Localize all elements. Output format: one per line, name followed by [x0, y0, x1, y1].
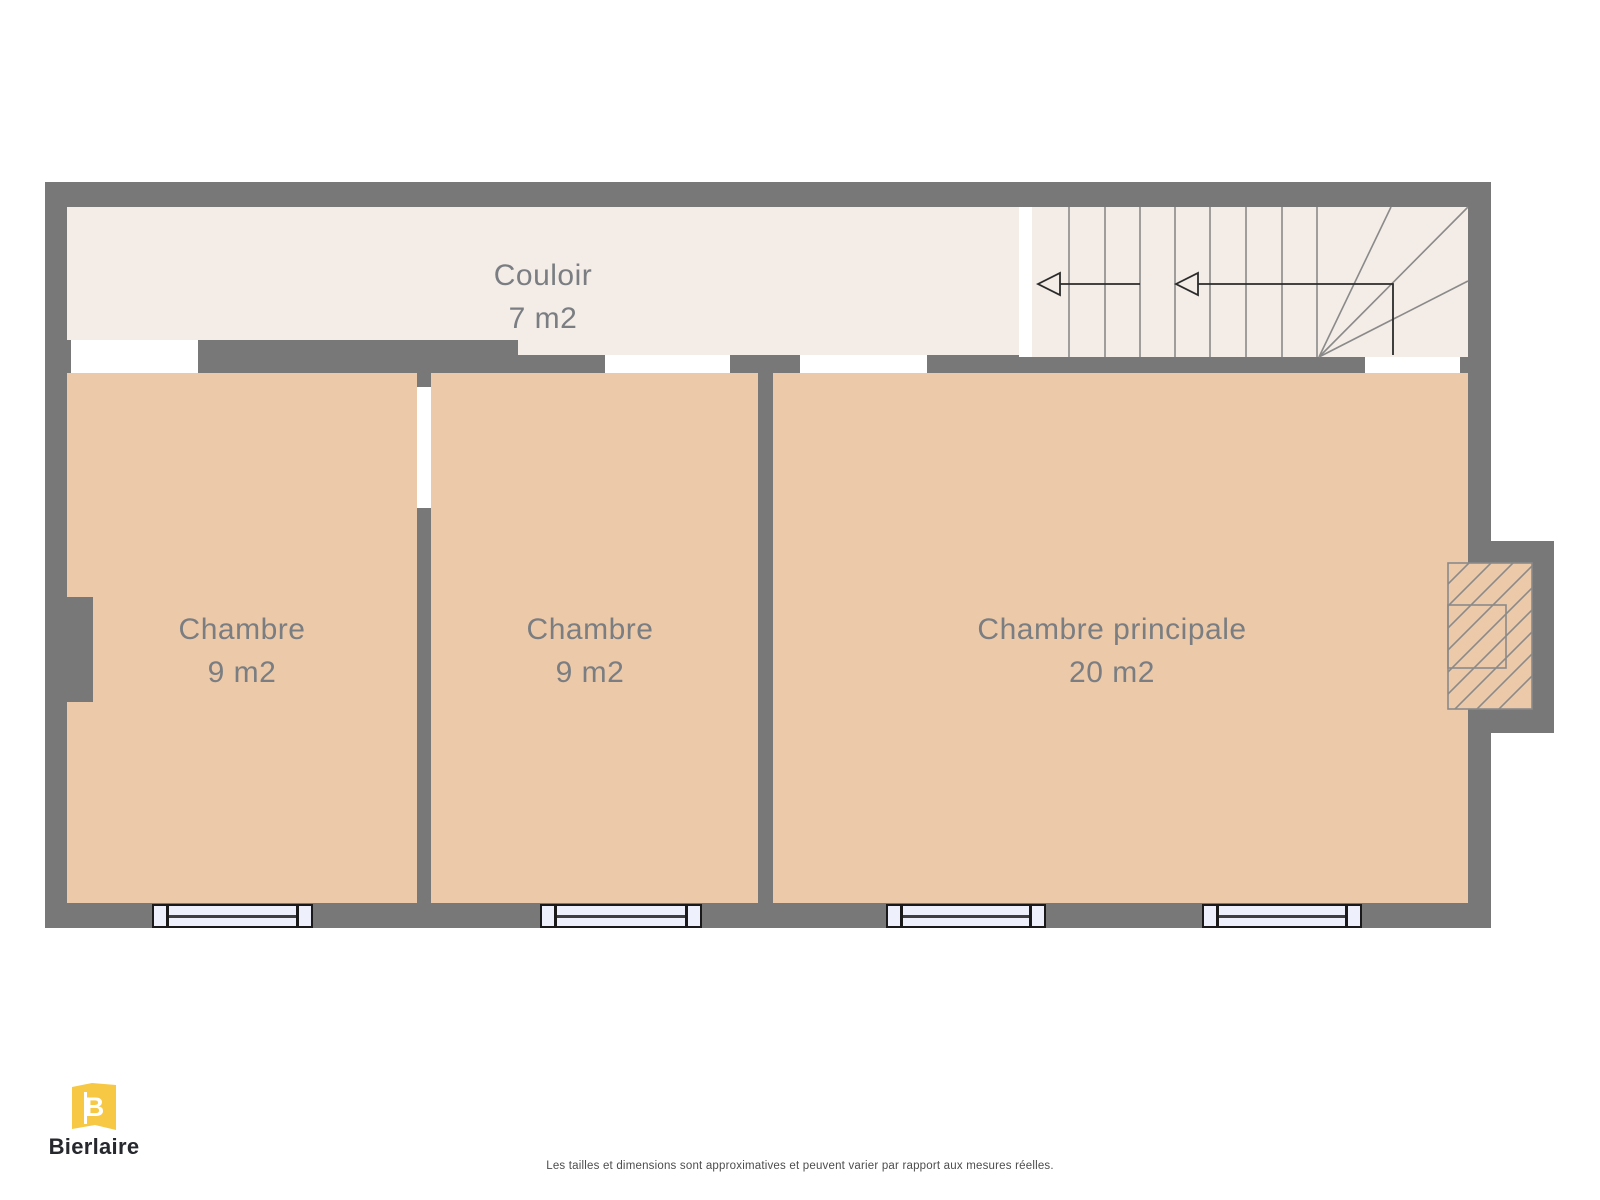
room-name: Couloir [494, 254, 593, 297]
room-label-couloir: Couloir 7 m2 [494, 254, 593, 340]
couloir-floor-extension [518, 340, 1019, 355]
brand-monogram: B [72, 1083, 116, 1132]
brand-logo-icon: B [72, 1083, 116, 1132]
left-wall-pilaster [67, 597, 93, 702]
window-mullion [1029, 906, 1032, 926]
window-sash [169, 915, 296, 918]
room-area: 9 m2 [527, 651, 654, 694]
room-label-chambre-1: Chambre 9 m2 [179, 608, 306, 694]
window-mullion [1345, 906, 1348, 926]
room-name: Chambre [527, 608, 654, 651]
window-icon [1202, 904, 1362, 928]
floor-plan: Couloir 7 m2 Chambre 9 m2 Chambre 9 m2 C… [0, 0, 1600, 1200]
window-mullion [296, 906, 299, 926]
brand-name: Bierlaire [34, 1134, 154, 1160]
room-area: 7 m2 [494, 297, 593, 340]
room-label-chambre-principale: Chambre principale 20 m2 [977, 608, 1246, 694]
monogram-letter: B [85, 1094, 105, 1121]
staircase-floor [1032, 207, 1468, 357]
door-opening-couloir-chambre2 [605, 355, 730, 373]
door-opening-couloir-chambre1 [71, 340, 198, 373]
disclaimer-text: Les tailles et dimensions sont approxima… [0, 1160, 1600, 1172]
window-sash [903, 915, 1029, 918]
door-opening-chambre1-chambre2 [417, 387, 431, 508]
room-label-chambre-2: Chambre 9 m2 [527, 608, 654, 694]
window-icon [152, 904, 313, 928]
window-sash [557, 915, 685, 918]
door-opening-stairs-principale [1365, 357, 1460, 373]
chimney-bump-wall [1491, 541, 1554, 733]
room-area: 20 m2 [977, 651, 1246, 694]
window-mullion [685, 906, 688, 926]
room-name: Chambre [179, 608, 306, 651]
window-icon [540, 904, 702, 928]
window-icon [886, 904, 1046, 928]
room-area: 9 m2 [179, 651, 306, 694]
door-opening-couloir-principale [800, 355, 927, 373]
window-sash [1219, 915, 1345, 918]
couloir-stairs-opening [1019, 207, 1032, 357]
room-name: Chambre principale [977, 608, 1246, 651]
